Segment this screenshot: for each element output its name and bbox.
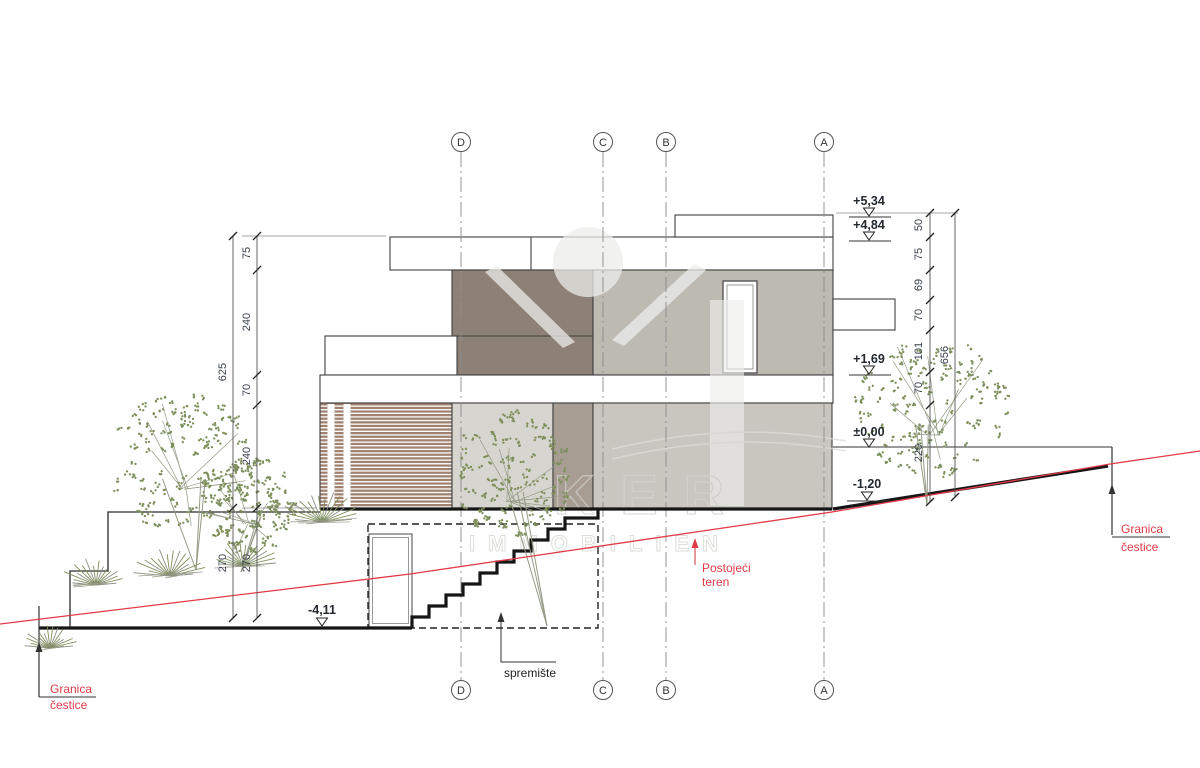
- dim-value: 220: [913, 444, 925, 462]
- level-marker-triangle: [864, 208, 875, 216]
- dim-value: 240: [241, 313, 253, 331]
- grass-tuft: [64, 559, 122, 587]
- roof-parapet: [675, 215, 833, 237]
- floor-slab-band: [320, 375, 833, 403]
- tree: [113, 393, 257, 570]
- label-granica-left: Granica čestice: [36, 642, 97, 712]
- side-canopy: [833, 299, 895, 330]
- level-marker-triangle: [317, 618, 328, 626]
- level-marker-triangle: [862, 492, 873, 500]
- dim-value-overall: 656: [939, 346, 951, 364]
- label-granica-right: Granica čestice: [1109, 484, 1171, 554]
- label-granica-right-1: Granica: [1121, 522, 1163, 536]
- architectural-section-drawing: KER IMMOBILIEN D C B A D C B: [0, 0, 1200, 768]
- elevation-value-484: +4,84: [853, 218, 885, 232]
- dim-value: 101: [913, 342, 925, 360]
- drawing-canvas: KER IMMOBILIEN D C B A D C B: [0, 0, 1200, 768]
- dim-value: 69: [913, 279, 925, 291]
- ground-wall-light: [452, 403, 553, 509]
- level-marker-triangle: [864, 439, 875, 447]
- label-postojeci-1: Postojeći: [702, 561, 751, 575]
- dim-value: 270: [241, 554, 253, 572]
- label-granica-right-2: čestice: [1121, 540, 1159, 554]
- label-granica-left-1: Granica: [50, 682, 92, 696]
- label-postojeci-2: teren: [702, 575, 729, 589]
- label-granica-left-2: čestice: [50, 698, 88, 712]
- dim-value: 70: [913, 382, 925, 394]
- grid-letter: D: [457, 685, 465, 697]
- grid-letter: A: [820, 685, 828, 697]
- grass-tuft: [133, 549, 205, 578]
- elevation-value-169: +1,69: [853, 352, 885, 366]
- elevation-value-000: ±0,00: [853, 425, 884, 439]
- dim-value: 75: [241, 247, 253, 259]
- spremiste-leader: [501, 615, 556, 662]
- grid-letter: C: [599, 137, 607, 149]
- dim-value: 270: [217, 554, 229, 572]
- grid-letter: B: [662, 685, 669, 697]
- dim-value: 75: [913, 248, 925, 260]
- balcony-parapet: [325, 336, 457, 375]
- slat-screen: [320, 403, 452, 509]
- grid-letter: C: [599, 685, 607, 697]
- level-marker-triangle: [864, 366, 875, 374]
- dim-value: 50: [913, 219, 925, 231]
- elevation-value-534: +5,34: [853, 194, 885, 208]
- elevation-value-m411: -4,11: [308, 603, 336, 617]
- arrow-up-icon: [498, 612, 505, 622]
- dim-value: 70: [913, 309, 925, 321]
- elevation-value-m120: -1,20: [853, 477, 882, 491]
- slat-gap: [344, 404, 351, 508]
- grid-letter: D: [457, 137, 465, 149]
- basement-door-inner: [373, 538, 409, 624]
- label-spremiste-group: spremište: [498, 612, 557, 680]
- dim-value-overall: 625: [217, 363, 229, 381]
- watermark-circle: [553, 227, 623, 297]
- label-spremiste: spremište: [504, 666, 556, 680]
- grid-letter: A: [820, 137, 828, 149]
- watermark-text-2: IMMOBILIEN: [469, 531, 731, 556]
- dim-value: 240: [241, 447, 253, 465]
- arrow-up-icon: [1109, 484, 1116, 494]
- grid-letter: B: [662, 137, 669, 149]
- dim-value: 70: [241, 384, 253, 396]
- level-marker-triangle: [864, 232, 875, 240]
